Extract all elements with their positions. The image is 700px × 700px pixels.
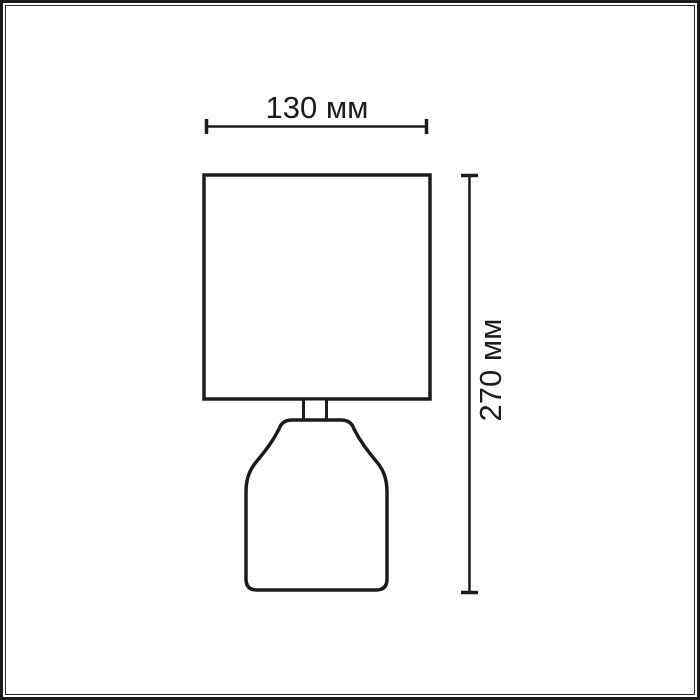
height-dimension-label: 270 мм bbox=[473, 319, 508, 422]
lamp-base-outline-icon bbox=[246, 420, 387, 590]
picture-frame-border: 130 мм 270 мм bbox=[0, 0, 700, 700]
lamp-dimension-diagram: 130 мм 270 мм bbox=[3, 3, 697, 697]
lamp-neck-icon bbox=[304, 399, 327, 420]
height-dimension: 270 мм bbox=[461, 175, 508, 593]
lampshade-outline-icon bbox=[204, 175, 430, 399]
width-dimension-label: 130 мм bbox=[266, 90, 369, 125]
width-dimension: 130 мм bbox=[206, 90, 427, 134]
